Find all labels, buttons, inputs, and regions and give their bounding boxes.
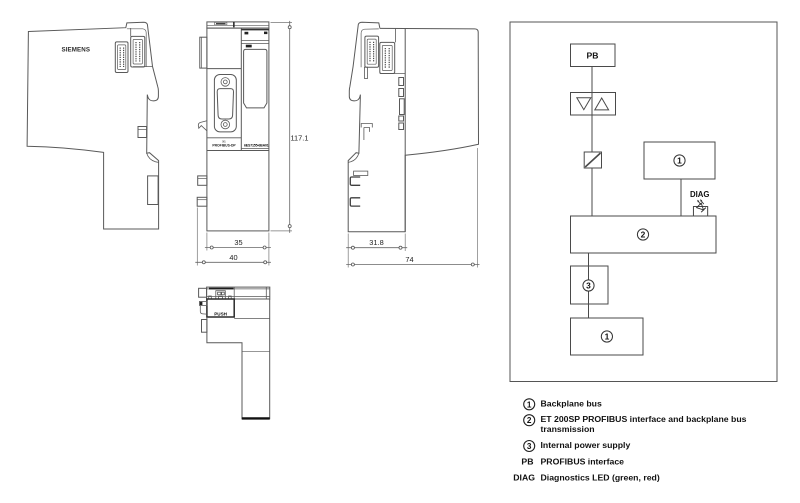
svg-text:PUSH: PUSH (214, 312, 227, 317)
svg-text:PROFIBUS-DP: PROFIBUS-DP (212, 143, 236, 147)
svg-text:35: 35 (234, 238, 242, 247)
svg-text:2: 2 (641, 230, 646, 240)
svg-text:3: 3 (586, 281, 591, 291)
svg-text:ET 200SP PROFIBUS interface an: ET 200SP PROFIBUS interface and backplan… (541, 414, 747, 424)
svg-text:PB: PB (587, 51, 599, 61)
svg-text:1: 1 (605, 332, 610, 342)
svg-text:SIEMENS: SIEMENS (62, 46, 91, 53)
svg-text:DIAG: DIAG (513, 472, 535, 482)
svg-text:Internal power supply: Internal power supply (541, 440, 631, 450)
svg-text:1: 1 (527, 400, 532, 409)
svg-text:DIAG: DIAG (690, 190, 710, 199)
svg-text:Diagnostics LED (green, red): Diagnostics LED (green, red) (541, 472, 660, 482)
svg-text:PROFIBUS interface: PROFIBUS interface (541, 456, 625, 466)
svg-text:2: 2 (527, 416, 532, 425)
svg-text:1: 1 (677, 156, 682, 166)
svg-text:Backplane bus: Backplane bus (541, 398, 602, 408)
svg-text:40: 40 (229, 253, 237, 262)
svg-text:PB: PB (521, 456, 533, 466)
svg-text:transmission: transmission (541, 424, 595, 434)
svg-text:74: 74 (405, 255, 413, 264)
svg-text:117.1: 117.1 (291, 134, 309, 143)
svg-text:3: 3 (527, 442, 532, 451)
svg-text:31.8: 31.8 (369, 238, 383, 247)
svg-text:6ES7155-6BA01: 6ES7155-6BA01 (244, 144, 269, 148)
